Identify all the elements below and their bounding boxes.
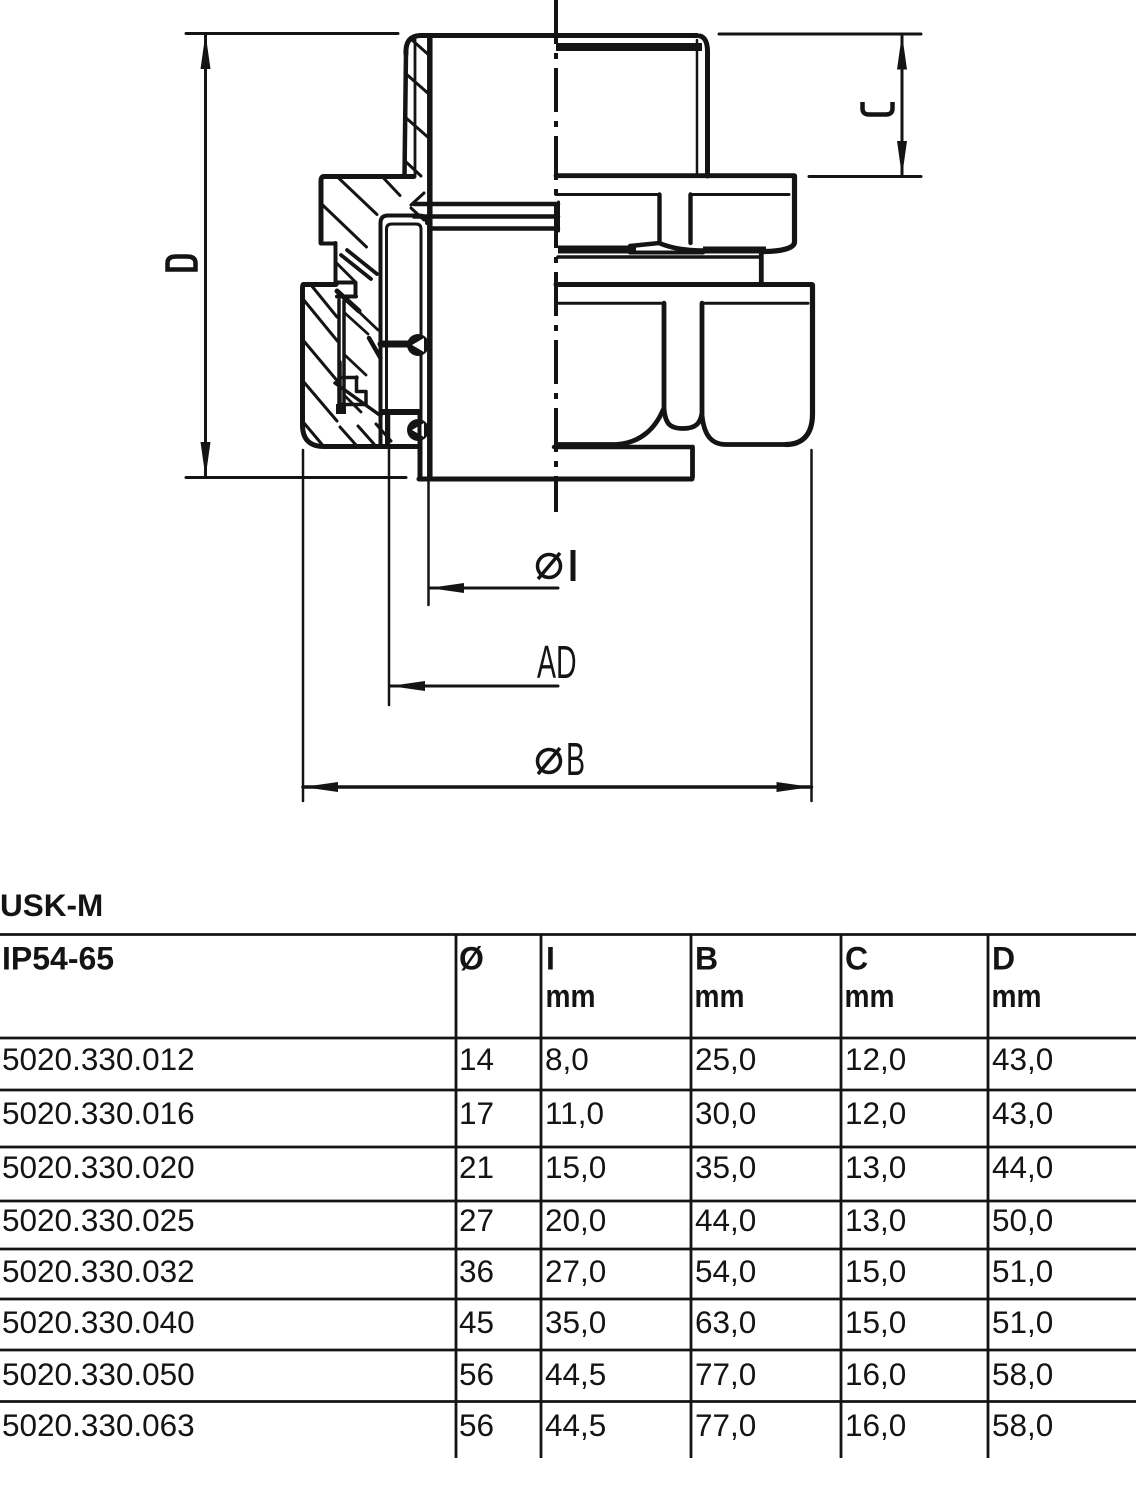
svg-text:5020.330.020: 5020.330.020 xyxy=(2,1149,195,1185)
svg-text:12,0: 12,0 xyxy=(845,1041,906,1077)
svg-text:D: D xyxy=(992,941,1015,977)
svg-text:54,0: 54,0 xyxy=(695,1253,756,1289)
svg-text:50,0: 50,0 xyxy=(992,1202,1053,1238)
svg-text:15,0: 15,0 xyxy=(845,1253,906,1289)
svg-text:Ø: Ø xyxy=(459,941,484,977)
svg-text:mm: mm xyxy=(845,978,895,1014)
svg-text:63,0: 63,0 xyxy=(695,1304,756,1340)
svg-text:43,0: 43,0 xyxy=(992,1095,1053,1131)
svg-text:36: 36 xyxy=(459,1253,494,1289)
svg-text:12,0: 12,0 xyxy=(845,1095,906,1131)
svg-text:21: 21 xyxy=(459,1149,494,1185)
svg-text:I: I xyxy=(546,941,555,977)
svg-text:56: 56 xyxy=(459,1407,494,1443)
svg-text:43,0: 43,0 xyxy=(992,1041,1053,1077)
svg-text:77,0: 77,0 xyxy=(695,1356,756,1392)
svg-text:IP54-65: IP54-65 xyxy=(2,941,114,977)
svg-text:16,0: 16,0 xyxy=(845,1356,906,1392)
svg-text:35,0: 35,0 xyxy=(695,1149,756,1185)
svg-text:mm: mm xyxy=(695,978,745,1014)
svg-text:mm: mm xyxy=(546,978,596,1014)
svg-text:C: C xyxy=(845,941,868,977)
svg-text:17: 17 xyxy=(459,1095,494,1131)
svg-text:16,0: 16,0 xyxy=(845,1407,906,1443)
svg-text:B: B xyxy=(566,734,585,786)
svg-text:8,0: 8,0 xyxy=(545,1041,589,1077)
svg-text:5020.330.040: 5020.330.040 xyxy=(2,1304,195,1340)
svg-text:51,0: 51,0 xyxy=(992,1304,1053,1340)
svg-text:14: 14 xyxy=(459,1041,494,1077)
svg-text:20,0: 20,0 xyxy=(545,1202,606,1238)
svg-text:44,5: 44,5 xyxy=(545,1356,606,1392)
svg-text:5020.330.012: 5020.330.012 xyxy=(2,1041,195,1077)
svg-text:USK-M: USK-M xyxy=(0,887,103,923)
svg-text:mm: mm xyxy=(992,978,1042,1014)
svg-text:44,5: 44,5 xyxy=(545,1407,606,1443)
svg-text:5020.330.016: 5020.330.016 xyxy=(2,1095,195,1131)
svg-text:45: 45 xyxy=(459,1304,494,1340)
svg-text:5020.330.063: 5020.330.063 xyxy=(2,1407,195,1443)
svg-text:58,0: 58,0 xyxy=(992,1407,1053,1443)
svg-text:15,0: 15,0 xyxy=(545,1149,606,1185)
svg-text:25,0: 25,0 xyxy=(695,1041,756,1077)
svg-text:B: B xyxy=(695,941,718,977)
svg-text:15,0: 15,0 xyxy=(845,1304,906,1340)
svg-text:11,0: 11,0 xyxy=(545,1095,604,1131)
svg-text:27,0: 27,0 xyxy=(545,1253,606,1289)
svg-text:77,0: 77,0 xyxy=(695,1407,756,1443)
svg-text:35,0: 35,0 xyxy=(545,1304,606,1340)
svg-text:27: 27 xyxy=(459,1202,494,1238)
svg-text:51,0: 51,0 xyxy=(992,1253,1053,1289)
svg-text:30,0: 30,0 xyxy=(695,1095,756,1131)
svg-text:13,0: 13,0 xyxy=(845,1202,906,1238)
svg-text:5020.330.032: 5020.330.032 xyxy=(2,1253,195,1289)
svg-text:AD: AD xyxy=(537,637,577,689)
svg-text:58,0: 58,0 xyxy=(992,1356,1053,1392)
svg-text:5020.330.050: 5020.330.050 xyxy=(2,1356,195,1392)
svg-text:44,0: 44,0 xyxy=(992,1149,1053,1185)
svg-text:5020.330.025: 5020.330.025 xyxy=(2,1202,195,1238)
svg-text:56: 56 xyxy=(459,1356,494,1392)
svg-text:44,0: 44,0 xyxy=(695,1202,756,1238)
svg-text:13,0: 13,0 xyxy=(845,1149,906,1185)
